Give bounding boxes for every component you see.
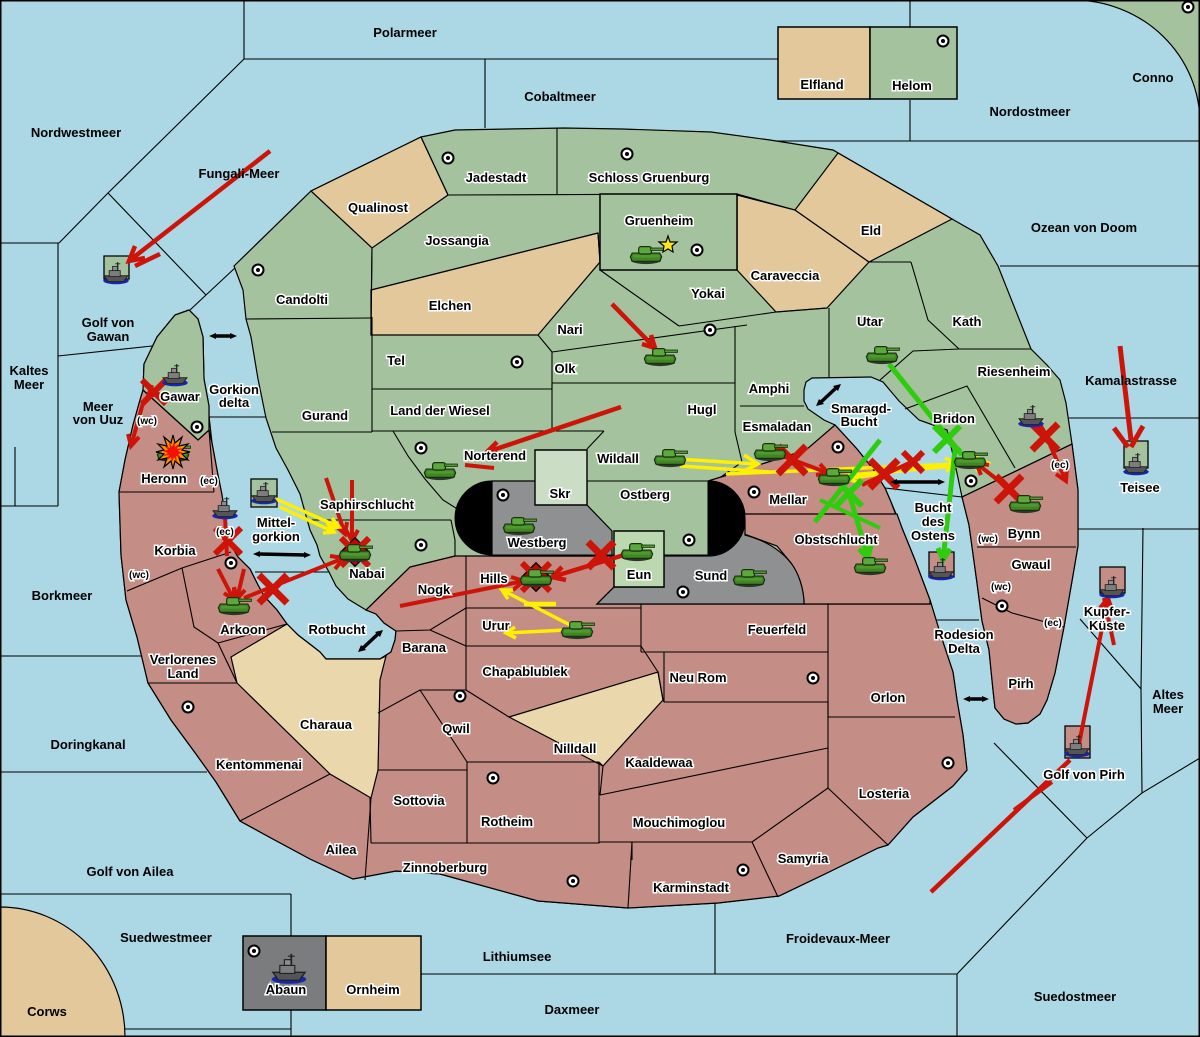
svg-text:Cobaltmeer: Cobaltmeer (524, 89, 596, 104)
svg-text:Ornheim: Ornheim (346, 982, 399, 997)
svg-text:Gawan: Gawan (87, 329, 130, 344)
svg-text:Kamalastrasse: Kamalastrasse (1085, 373, 1177, 388)
svg-text:delta: delta (219, 395, 250, 410)
svg-text:Doringkanal: Doringkanal (50, 737, 125, 752)
svg-text:Suedwestmeer: Suedwestmeer (120, 930, 212, 945)
svg-text:Sund: Sund (695, 568, 728, 583)
svg-text:Ostens: Ostens (911, 528, 955, 543)
svg-text:Ozean von Doom: Ozean von Doom (1031, 220, 1137, 235)
svg-text:Gwaul: Gwaul (1011, 557, 1050, 572)
svg-text:Ailea: Ailea (325, 842, 357, 857)
svg-text:Arkoon: Arkoon (220, 622, 266, 637)
svg-text:Nilldall: Nilldall (554, 741, 597, 756)
svg-text:gorkion: gorkion (252, 529, 300, 544)
svg-text:Teisee: Teisee (1120, 480, 1160, 495)
svg-text:Abaun: Abaun (266, 982, 307, 997)
svg-text:Barana: Barana (402, 640, 447, 655)
svg-text:Verlorenes: Verlorenes (150, 652, 217, 667)
svg-text:Küste: Küste (1089, 618, 1125, 633)
svg-text:Eld: Eld (861, 223, 881, 238)
svg-text:Amphi: Amphi (749, 381, 789, 396)
svg-text:(wc): (wc) (137, 416, 157, 427)
svg-text:Nordostmeer: Nordostmeer (990, 104, 1071, 119)
svg-text:Wildall: Wildall (597, 451, 639, 466)
svg-text:Feuerfeld: Feuerfeld (748, 622, 807, 637)
svg-text:Karminstadt: Karminstadt (653, 880, 730, 895)
svg-text:Suedostmeer: Suedostmeer (1034, 989, 1116, 1004)
svg-text:Utar: Utar (857, 314, 883, 329)
svg-text:(ec): (ec) (200, 476, 218, 487)
svg-text:Charaua: Charaua (300, 717, 353, 732)
svg-text:Nordwestmeer: Nordwestmeer (31, 125, 121, 140)
svg-text:Hills: Hills (480, 571, 507, 586)
svg-text:Obstschlucht: Obstschlucht (794, 532, 878, 547)
svg-text:Qwil: Qwil (442, 721, 469, 736)
svg-text:Nari: Nari (557, 322, 582, 337)
svg-text:Conno: Conno (1132, 70, 1173, 85)
svg-text:Rotheim: Rotheim (481, 814, 533, 829)
svg-text:Olk: Olk (555, 361, 577, 376)
svg-text:Qualinost: Qualinost (348, 200, 409, 215)
svg-text:Bucht: Bucht (915, 500, 953, 515)
svg-text:Schloss Gruenburg: Schloss Gruenburg (589, 170, 710, 185)
svg-text:Gruenheim: Gruenheim (625, 213, 694, 228)
svg-text:Land der Wiesel: Land der Wiesel (390, 403, 490, 418)
svg-text:Neu Rom: Neu Rom (669, 670, 726, 685)
svg-text:Yokai: Yokai (691, 286, 725, 301)
svg-text:(ec): (ec) (1044, 618, 1062, 629)
svg-text:Hugl: Hugl (688, 402, 717, 417)
svg-text:Candolti: Candolti (276, 292, 328, 307)
svg-text:Nogk: Nogk (418, 582, 451, 597)
svg-text:Golf von Pirh: Golf von Pirh (1043, 767, 1125, 782)
svg-text:Elchen: Elchen (429, 298, 472, 313)
svg-text:des: des (922, 514, 944, 529)
svg-text:Kath: Kath (953, 314, 982, 329)
svg-text:(wc): (wc) (991, 582, 1011, 593)
svg-text:Gawar: Gawar (160, 389, 200, 404)
svg-text:(ec): (ec) (1051, 460, 1069, 471)
svg-text:Helom: Helom (892, 78, 932, 93)
svg-text:Polarmeer: Polarmeer (373, 25, 437, 40)
svg-text:Meer: Meer (14, 377, 44, 392)
svg-text:Altes: Altes (1152, 687, 1184, 702)
svg-text:Froidevaux-Meer: Froidevaux-Meer (786, 931, 890, 946)
svg-text:Daxmeer: Daxmeer (545, 1002, 600, 1017)
svg-text:Kaltes: Kaltes (9, 363, 48, 378)
svg-text:Bucht: Bucht (841, 414, 879, 429)
svg-text:Eun: Eun (627, 567, 652, 582)
svg-text:Golf von: Golf von (82, 315, 135, 330)
svg-text:Korbia: Korbia (154, 543, 196, 558)
svg-text:Tel: Tel (387, 353, 405, 368)
svg-text:Esmaladan: Esmaladan (743, 419, 812, 434)
svg-text:Zinnoberburg: Zinnoberburg (403, 860, 488, 875)
svg-text:Sottovia: Sottovia (393, 793, 445, 808)
svg-text:Riesenheim: Riesenheim (978, 364, 1051, 379)
svg-text:Bridon: Bridon (933, 411, 975, 426)
svg-text:Samyria: Samyria (778, 851, 829, 866)
svg-text:Nabai: Nabai (349, 566, 384, 581)
svg-text:Bynn: Bynn (1008, 526, 1041, 541)
svg-text:Caraveccia: Caraveccia (751, 268, 820, 283)
svg-text:Mellar: Mellar (769, 492, 807, 507)
svg-text:Gurand: Gurand (302, 408, 348, 423)
svg-text:Heronn: Heronn (141, 471, 187, 486)
svg-text:Orlon: Orlon (871, 690, 906, 705)
svg-text:Kupfer-: Kupfer- (1084, 604, 1130, 619)
svg-text:Kaaldewaa: Kaaldewaa (625, 755, 693, 770)
svg-text:Westberg: Westberg (508, 535, 567, 550)
svg-text:(wc): (wc) (129, 570, 149, 581)
svg-text:Skr: Skr (550, 486, 571, 501)
svg-text:Kentommenai: Kentommenai (216, 757, 302, 772)
svg-text:Jossangia: Jossangia (425, 233, 489, 248)
svg-text:(ec): (ec) (216, 527, 234, 538)
svg-text:Norterend: Norterend (464, 448, 526, 463)
svg-text:Chapablublek: Chapablublek (482, 664, 568, 679)
svg-text:Corws: Corws (27, 1004, 67, 1019)
svg-text:Meer: Meer (1153, 701, 1183, 716)
svg-text:Losteria: Losteria (859, 786, 910, 801)
svg-text:Delta: Delta (948, 641, 981, 656)
svg-text:Ostberg: Ostberg (620, 487, 670, 502)
svg-text:Urur: Urur (482, 618, 509, 633)
svg-text:(wc): (wc) (978, 534, 998, 545)
svg-text:von Uuz: von Uuz (73, 412, 124, 427)
svg-text:Golf von Ailea: Golf von Ailea (87, 864, 175, 879)
svg-text:Fungali-Meer: Fungali-Meer (199, 166, 280, 181)
svg-text:Pirh: Pirh (1008, 676, 1033, 691)
svg-text:Elfland: Elfland (800, 77, 843, 92)
svg-text:Jadestadt: Jadestadt (466, 170, 527, 185)
svg-text:Saphirschlucht: Saphirschlucht (320, 497, 415, 512)
svg-text:Borkmeer: Borkmeer (32, 588, 93, 603)
svg-text:Rodesion: Rodesion (934, 627, 993, 642)
svg-text:Mouchimoglou: Mouchimoglou (633, 815, 725, 830)
svg-text:Lithiumsee: Lithiumsee (483, 949, 552, 964)
svg-text:Land: Land (167, 666, 198, 681)
svg-text:Rotbucht: Rotbucht (308, 622, 366, 637)
svg-text:Mittel-: Mittel- (257, 515, 295, 530)
